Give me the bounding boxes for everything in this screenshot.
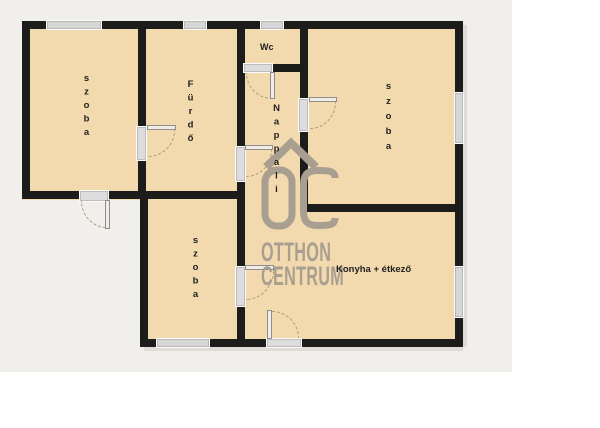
- wall-nappali-szoba-a: [300, 21, 308, 100]
- window-wc: [260, 20, 284, 30]
- wall-middle-a: [237, 21, 245, 148]
- wall-middle-b: [237, 180, 245, 268]
- room-label-konyha-etkezo: Konyha + étkező: [336, 262, 411, 278]
- window-szoba-bottom: [156, 338, 210, 348]
- room-label-szoba-bottom: szoba: [183, 235, 201, 303]
- door-opening-furdo-nappali: [235, 146, 246, 182]
- room-label-nappali: Nappali: [264, 103, 282, 198]
- wall-szoba-furdo-a: [138, 21, 146, 127]
- watermark-text-centrum: CENTRUM: [261, 263, 344, 290]
- room-label-szoba-top-right: szoba: [376, 81, 394, 156]
- door-opening-nappali-szoba: [298, 98, 309, 132]
- door-leaf-wc: [270, 72, 275, 99]
- door-opening-exterior-konyha: [266, 338, 302, 348]
- window-szoba-top-right: [454, 92, 464, 144]
- door-opening-szoba-konyha: [235, 266, 246, 307]
- room-label-furdo: Fürdő: [178, 79, 196, 147]
- door-leaf-nappali-szoba: [309, 97, 337, 102]
- room-label-wc: Wc: [260, 39, 274, 55]
- door-opening-szoba-furdo: [136, 126, 147, 161]
- door-opening-wc: [243, 63, 273, 73]
- door-swing-arc-exterior-szoba: [81, 201, 107, 228]
- wall-szoba-bottom-left: [140, 191, 148, 347]
- door-leaf-szoba-furdo: [147, 125, 176, 130]
- door-leaf-exterior-konyha: [267, 310, 272, 339]
- floor-plan: OTTHON CENTRUM szoba Fürdő Wc Nappali sz…: [0, 0, 600, 428]
- wall-exterior-left: [22, 21, 30, 199]
- wall-szoba-furdo-b: [138, 160, 146, 199]
- window-szoba-top-left: [46, 20, 102, 30]
- wall-exterior-bottom-b: [300, 339, 463, 347]
- door-leaf-exterior-szoba: [105, 200, 110, 229]
- room-label-szoba-top-left: szoba: [74, 73, 92, 141]
- floorplan-page: OTTHON CENTRUM szoba Fürdő Wc Nappali sz…: [0, 0, 600, 428]
- window-konyha: [454, 266, 464, 318]
- wall-middle-c: [237, 305, 245, 347]
- window-furdo: [183, 20, 207, 30]
- wall-upper-block-bottom-a: [22, 191, 80, 199]
- wall-upper-block-bottom-b: [108, 191, 244, 199]
- room-floor-szoba-top-left-and-furdo: [22, 21, 245, 200]
